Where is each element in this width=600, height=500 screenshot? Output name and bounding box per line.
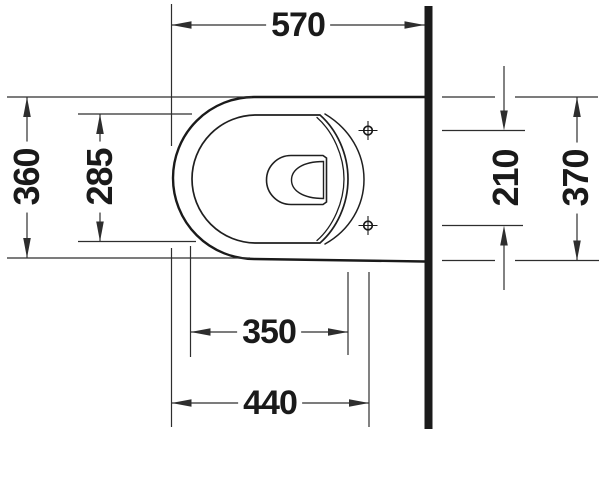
dim-label-210: 210	[487, 142, 525, 213]
dim-label-350: 350	[237, 314, 301, 350]
dim-label-285: 285	[81, 141, 119, 212]
technical-drawing-page: 570 360 285 210 370 350 440	[0, 0, 600, 500]
dim-label-370: 370	[557, 142, 595, 213]
drawing-canvas	[0, 0, 600, 500]
dimension-lines-group	[7, 4, 599, 427]
dim-label-570: 570	[266, 7, 330, 43]
fixing-hole-top-icon	[359, 121, 378, 140]
toilet-bowl-group	[192, 114, 364, 244]
dim-label-440: 440	[238, 385, 302, 421]
toilet-outline-group	[173, 97, 425, 262]
bowl-rim-outline	[192, 115, 348, 243]
toilet-outer-outline	[173, 97, 425, 262]
trapway-outline	[267, 156, 327, 205]
fixing-holes-group	[359, 121, 378, 235]
wall-section-bar	[425, 6, 433, 429]
dim-label-360: 360	[8, 141, 46, 212]
fixing-hole-bottom-icon	[359, 216, 378, 235]
water-area-outline	[292, 162, 324, 199]
rim-lip-arc	[317, 118, 344, 241]
